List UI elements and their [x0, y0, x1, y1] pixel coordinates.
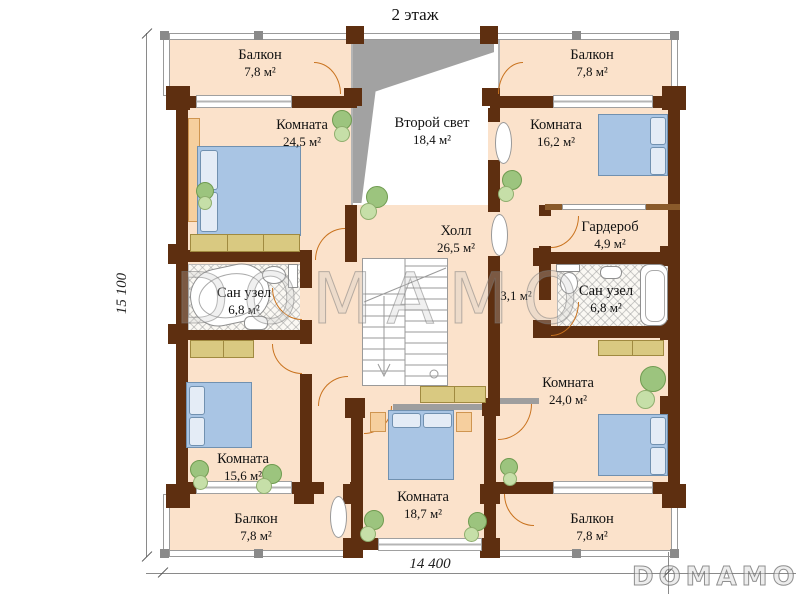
label-balcony-br: Балкон 7,8 м²: [530, 510, 654, 544]
plant: [464, 527, 479, 542]
wall: [484, 404, 496, 550]
wall: [668, 96, 680, 494]
railing-post: [160, 31, 169, 40]
label-wardrobe: Гардероб 4,9 м²: [548, 218, 672, 252]
pillow: [650, 147, 666, 175]
railing-post: [254, 31, 263, 40]
dimension-width: 14 400: [390, 556, 470, 573]
pillow: [392, 413, 421, 428]
door-leaf-balcony-bl: [330, 496, 347, 538]
label-room-right: Комната 24,0 м²: [506, 374, 630, 408]
log-joint: [480, 26, 498, 44]
void-glazing: [351, 33, 496, 40]
pillow: [650, 417, 666, 445]
dimension-line-left: [146, 33, 147, 557]
label-balcony-tr: Балкон 7,8 м²: [530, 46, 654, 80]
plant: [198, 196, 212, 210]
plant: [503, 472, 517, 486]
window: [196, 95, 292, 108]
nightstand: [370, 412, 386, 432]
dimension-height: 15 100: [114, 273, 131, 314]
railing-post: [160, 549, 169, 558]
log-joint: [166, 484, 190, 508]
label-room-bl: Комната 15,6 м²: [182, 450, 304, 484]
label-room-tl: Комната 24,5 м²: [240, 116, 364, 150]
pillow: [650, 117, 666, 145]
pillow: [423, 413, 452, 428]
pillow: [650, 447, 666, 475]
window: [553, 95, 653, 108]
plant: [498, 186, 514, 202]
floor-plan: 2 этаж: [0, 0, 800, 600]
log-joint: [166, 86, 190, 110]
dresser: [190, 234, 300, 252]
log-joint: [662, 86, 686, 110]
railing-post: [670, 549, 679, 558]
label-balcony-tl: Балкон 7,8 м²: [198, 46, 322, 80]
dresser: [598, 340, 664, 356]
balcony-railing: [490, 550, 678, 557]
plant: [360, 526, 376, 542]
plant: [360, 203, 377, 220]
log-joint: [294, 484, 314, 504]
watermark: DOMAMO: [175, 258, 592, 340]
pillow: [189, 417, 205, 446]
dresser: [190, 340, 254, 358]
railing-post: [572, 549, 581, 558]
sink-right: [600, 266, 622, 279]
railing-post: [254, 549, 263, 558]
label-void: Второй свет 18,4 м²: [368, 114, 496, 148]
partition-opening: [562, 204, 646, 210]
log-joint: [343, 484, 363, 504]
balcony-railing: [490, 33, 678, 40]
label-room-bc: Комната 18,7 м²: [362, 488, 484, 522]
label-balcony-bl: Балкон 7,8 м²: [194, 510, 318, 544]
brand-logo: DOMAMO: [632, 562, 800, 592]
label-room-tr: Комната 16,2 м²: [494, 116, 618, 150]
pillow: [189, 386, 205, 415]
nightstand: [456, 412, 472, 432]
dimension-tick: [142, 28, 153, 39]
window: [553, 481, 653, 494]
plant: [640, 366, 666, 392]
wall: [345, 205, 357, 262]
dresser: [420, 386, 486, 403]
log-joint: [660, 396, 680, 416]
log-joint: [343, 538, 363, 558]
log-joint: [346, 26, 364, 44]
label-hall: Холл 26,5 м²: [398, 222, 514, 256]
plant: [636, 390, 655, 409]
dimension-tick: [142, 551, 153, 562]
log-joint: [345, 398, 365, 418]
railing-post: [670, 31, 679, 40]
railing-post: [572, 31, 581, 40]
page-title: 2 этаж: [330, 5, 500, 25]
log-joint: [480, 538, 500, 558]
log-joint: [662, 484, 686, 508]
log-joint: [344, 88, 362, 106]
